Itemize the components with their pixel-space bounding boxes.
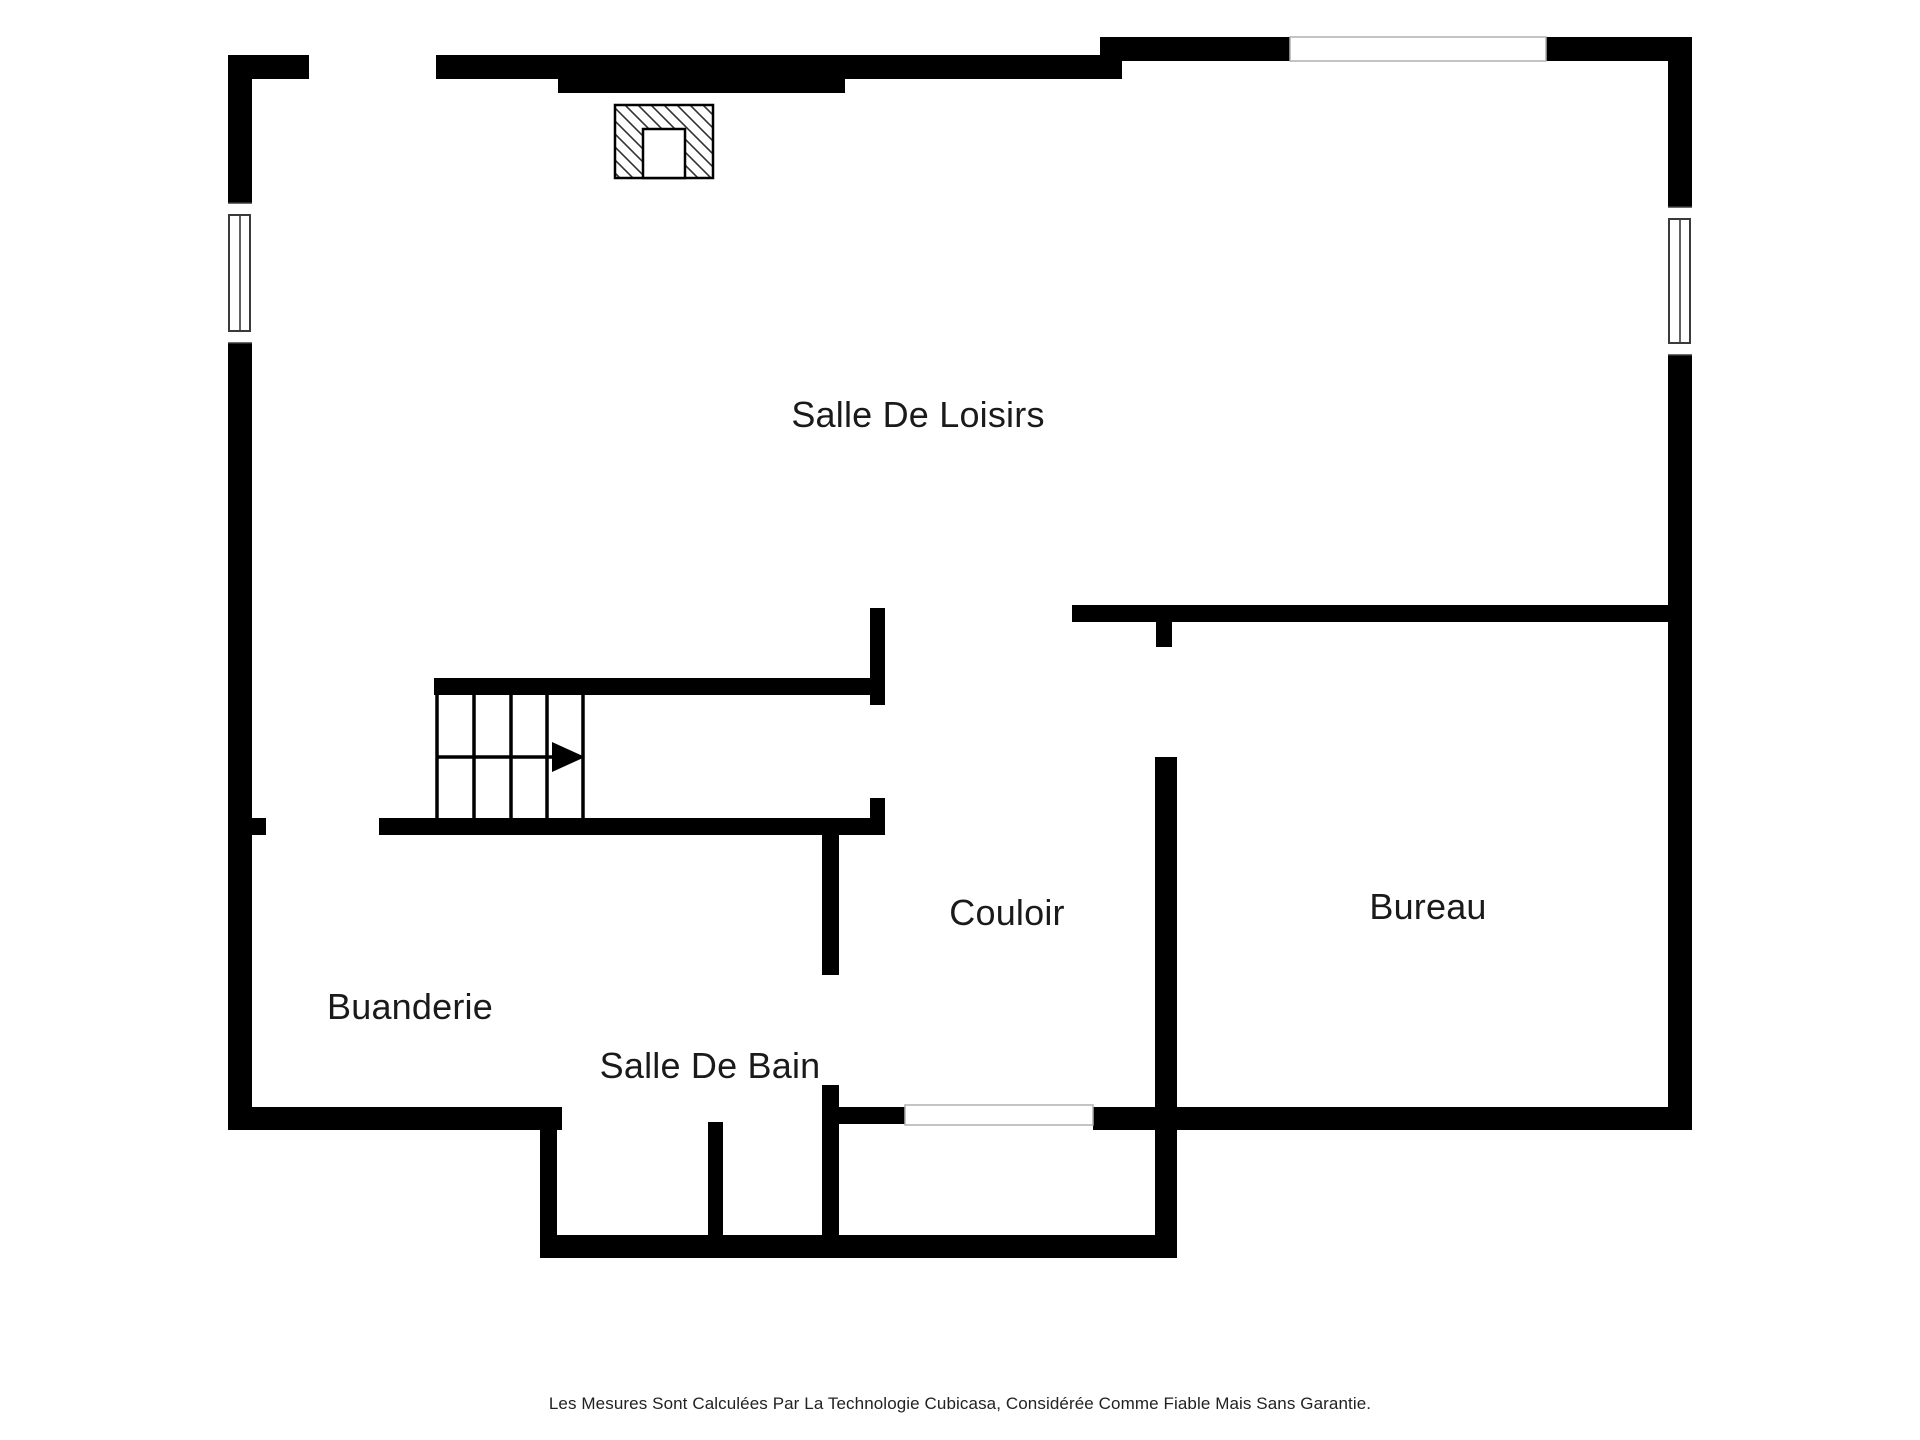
room-label-buanderie: Buanderie xyxy=(327,987,493,1027)
right-wall-window xyxy=(1667,207,1693,355)
wall-couloir-bottom-left xyxy=(836,1107,905,1124)
wall-below-stairs-nub xyxy=(870,798,885,818)
wall-sdb-couloir-upper xyxy=(822,818,839,975)
wall-above-stairs xyxy=(434,678,885,695)
wall-top-right-section-a xyxy=(1100,37,1290,61)
wall-right xyxy=(1668,37,1692,1130)
room-label-salle-de-bain: Salle De Bain xyxy=(600,1046,821,1086)
wall-couloir-bureau-divider xyxy=(1155,757,1177,1257)
hall-bottom-doorway xyxy=(905,1105,1093,1125)
floor-plan-drawing xyxy=(0,0,1920,1440)
room-label-bureau: Bureau xyxy=(1369,887,1486,927)
wall-bureau-bottom xyxy=(1177,1107,1692,1130)
wall-bump-inner-stub xyxy=(708,1122,723,1235)
left-wall-window xyxy=(227,203,253,343)
room-label-couloir: Couloir xyxy=(949,893,1064,933)
measurement-disclaimer: Les Mesures Sont Calculées Par La Techno… xyxy=(549,1394,1371,1414)
top-right-opening xyxy=(1290,37,1546,61)
wall-stair-t-stub xyxy=(870,608,885,705)
wall-sdb-couloir-lower xyxy=(822,1085,839,1235)
wall-below-stairs xyxy=(379,818,885,835)
wall-top-thick-section xyxy=(558,55,845,93)
room-label-salle-de-loisirs: Salle De Loisirs xyxy=(791,395,1044,435)
wall-loisirs-divider xyxy=(1072,605,1668,622)
floor-plan-page: { "page": { "background_color": "#ffffff… xyxy=(0,0,1920,1440)
wall-top-corner-block xyxy=(228,55,309,79)
wall-below-stairs-stub xyxy=(252,818,266,835)
wall-bump-bottom xyxy=(540,1235,1177,1258)
fireplace-icon xyxy=(615,105,713,178)
wall-buanderie-bottom xyxy=(228,1107,562,1130)
wall-couloir-bottom-right xyxy=(1093,1107,1155,1130)
wall-couloir-bureau-stub xyxy=(1156,622,1172,647)
